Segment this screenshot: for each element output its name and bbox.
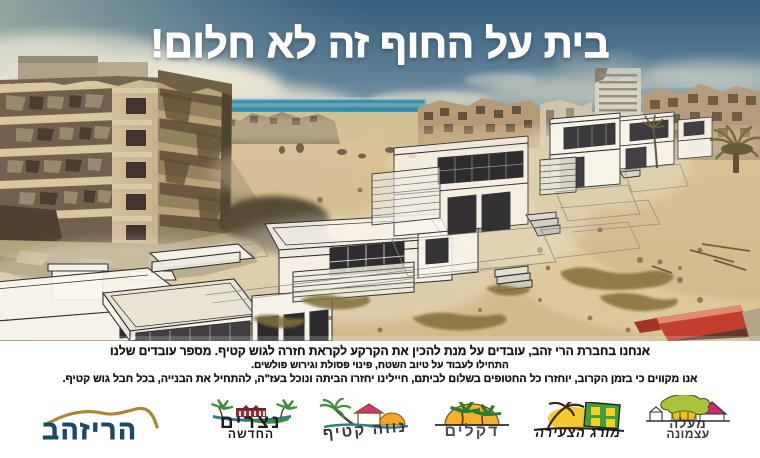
svg-text:הריזהב: הריזהב <box>42 415 138 445</box>
svg-text:עצמונה: עצמונה <box>666 427 709 441</box>
svg-text:דקלים: דקלים <box>445 422 500 440</box>
svg-text:נווה קטיף: נווה קטיף <box>322 418 408 442</box>
svg-text:החדשה: החדשה <box>228 427 274 441</box>
svg-text:מורג הצעירה: מורג הצעירה <box>535 425 621 440</box>
